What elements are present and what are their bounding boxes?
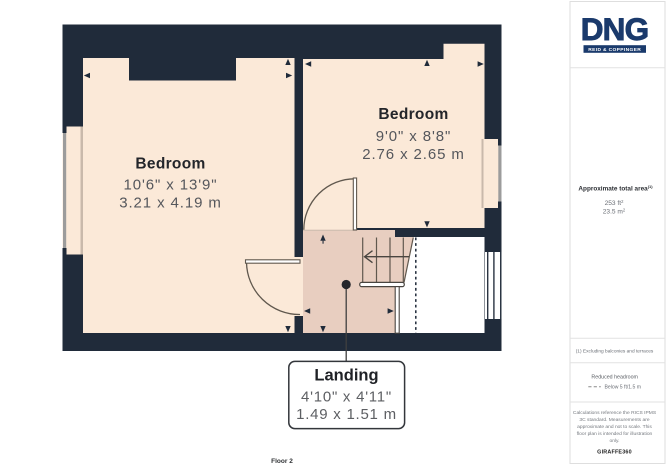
- svg-text:1.49 x 1.51 m: 1.49 x 1.51 m: [296, 406, 397, 423]
- svg-text:Approximate total area(1): Approximate total area(1): [578, 184, 653, 192]
- svg-text:2.76 x 2.65 m: 2.76 x 2.65 m: [362, 146, 465, 163]
- svg-text:Floor 2: Floor 2: [271, 458, 293, 465]
- svg-text:Below 5 ft/1.5 m: Below 5 ft/1.5 m: [605, 384, 642, 390]
- svg-text:23.5 m2: 23.5 m2: [603, 208, 626, 216]
- svg-text:(1) Excluding balconies and te: (1) Excluding balconies and terraces: [576, 349, 654, 355]
- svg-text:REID & COPPINGER: REID & COPPINGER: [588, 47, 641, 53]
- svg-text:DNG: DNG: [581, 11, 649, 47]
- svg-text:Reduced headroom: Reduced headroom: [591, 375, 638, 381]
- svg-text:only.: only.: [610, 438, 620, 444]
- svg-text:Calculations reference the RIC: Calculations reference the RICS IPMS: [573, 410, 657, 416]
- svg-text:4'10" x 4'11": 4'10" x 4'11": [301, 388, 392, 405]
- svg-text:3C standard. Measurements are: 3C standard. Measurements are: [579, 417, 649, 423]
- svg-text:approximate and not to scale.: approximate and not to scale. This: [577, 424, 652, 430]
- svg-text:3.21 x 4.19 m: 3.21 x 4.19 m: [119, 194, 222, 211]
- svg-text:Landing: Landing: [314, 367, 378, 385]
- svg-text:9'0" x 8'8": 9'0" x 8'8": [376, 128, 451, 145]
- svg-text:floor plan is intended for ill: floor plan is intended for illustration: [577, 431, 653, 437]
- svg-text:Bedroom: Bedroom: [135, 155, 205, 172]
- svg-text:Bedroom: Bedroom: [378, 106, 448, 123]
- svg-text:GIRAFFE360: GIRAFFE360: [597, 450, 632, 456]
- svg-text:10'6" x 13'9": 10'6" x 13'9": [124, 177, 218, 194]
